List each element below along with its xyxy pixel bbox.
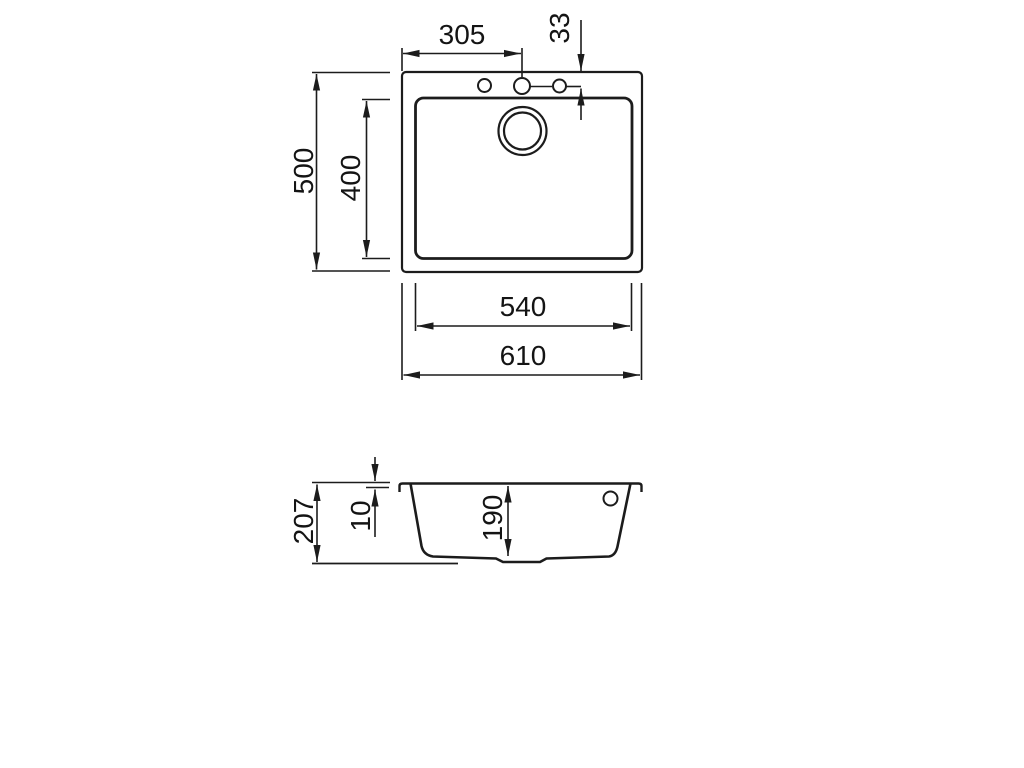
dimension-label-33: 33 [544,12,575,43]
faucet-hole-center [514,78,530,94]
dimension-label-305: 305 [439,19,486,50]
dimension-label-190: 190 [477,495,508,542]
section-view: 207 10 190 [288,457,642,564]
faucet-hole-right [553,80,566,93]
dimension-label-10: 10 [345,500,376,531]
dimension-hole-inset: 33 [531,12,582,120]
drain-outer-ring [499,107,547,155]
bowl-profile [411,484,631,563]
dimension-label-500: 500 [288,148,319,195]
dimension-bowl-inner-depth: 190 [477,486,508,556]
dimension-label-540: 540 [500,291,547,322]
drawing-canvas: 305 33 500 400 [0,0,1024,768]
overflow-hole [604,492,618,506]
faucet-hole-left [478,79,491,92]
drain-inner-ring [504,113,541,150]
dimension-bowl-depth: 400 [335,100,390,259]
dimension-label-400: 400 [335,155,366,202]
dimension-label-610: 610 [500,340,547,371]
dimension-bowl-width: 540 [416,283,632,331]
dimension-label-207: 207 [288,498,319,545]
bowl-outline [416,98,633,259]
drain [499,107,547,155]
technical-drawing: 305 33 500 400 [0,0,1024,768]
dimension-faucet-offset: 305 [402,19,522,77]
sink-outline [402,72,642,272]
rim-profile [400,484,642,493]
plan-view: 305 33 500 400 [288,12,642,380]
dimension-rim-thickness: 10 [345,457,389,537]
